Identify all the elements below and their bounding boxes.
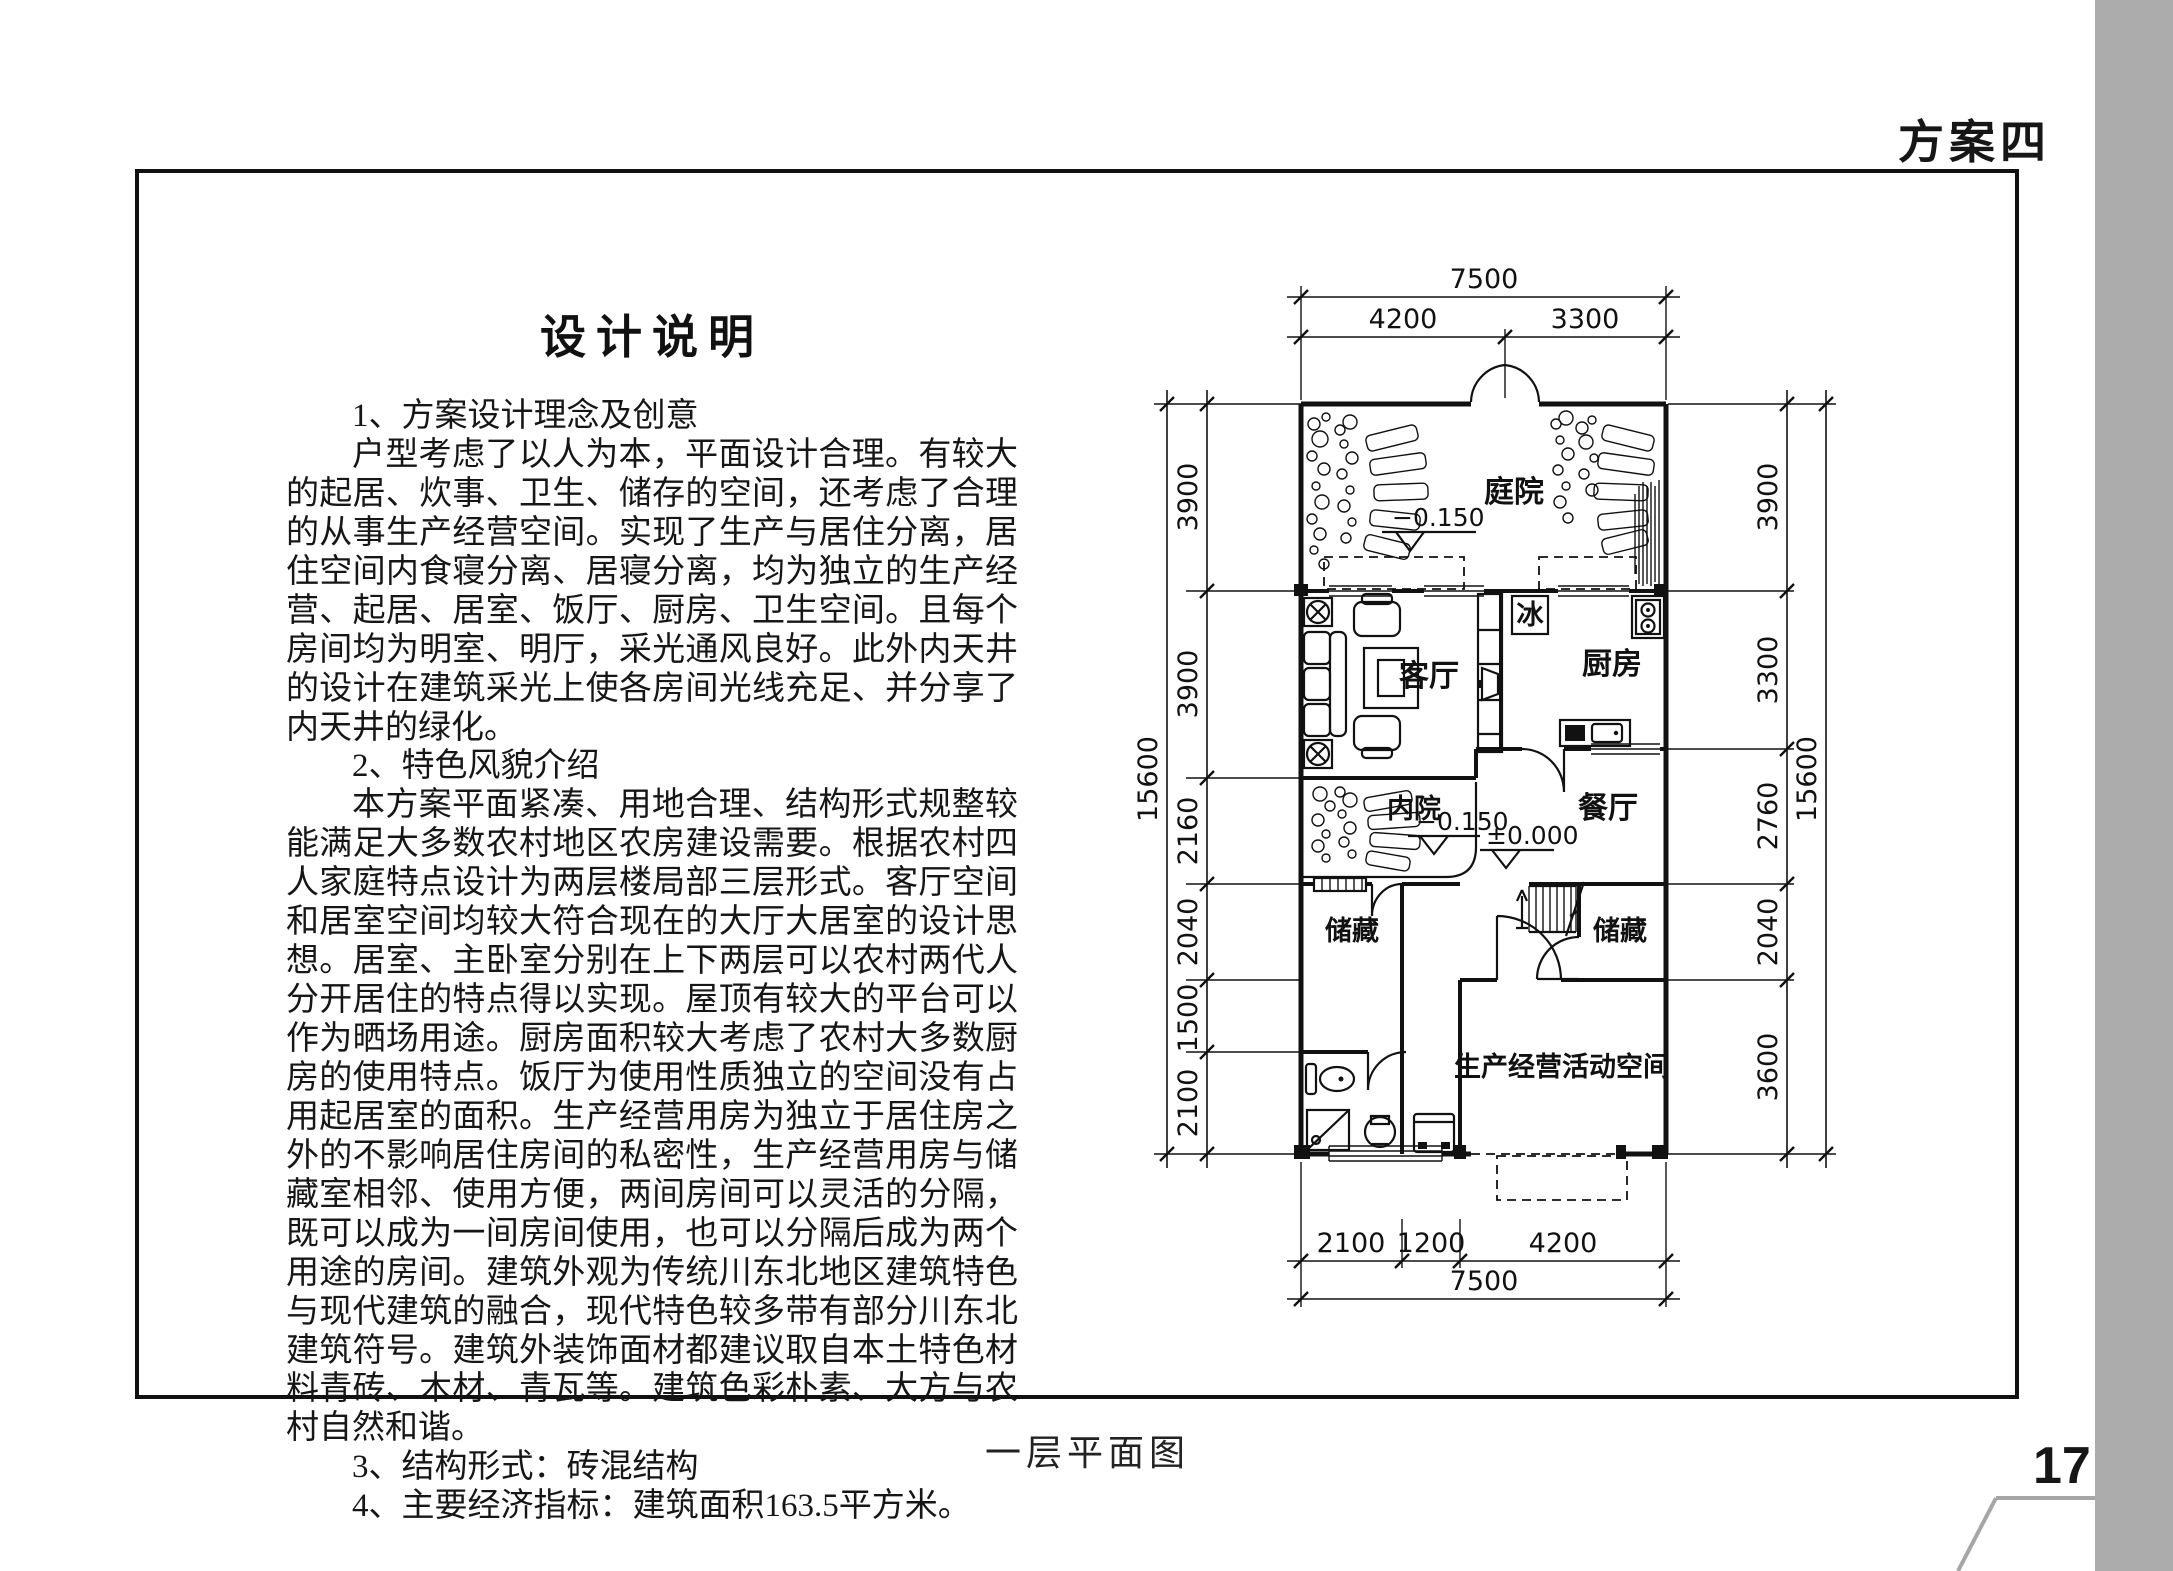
room-label-living: 客厅 — [1399, 659, 1459, 693]
scheme-tag: 方案四 — [1898, 106, 2051, 172]
dim-bottom-seg-3: 4200 — [1529, 1228, 1598, 1259]
section-heading-3: 3、结构形式：砖混结构 — [286, 1448, 1018, 1487]
section-heading-1: 1、方案设计理念及创意 — [286, 397, 1018, 436]
floor-plan: 7500 4200 3300 15600 3900 3900 2160 2040… — [1124, 234, 1924, 1354]
room-label-production: 生产经营活动空间 — [1454, 1051, 1670, 1082]
room-label-inner-courtyard: 内院 — [1387, 793, 1441, 824]
porch-dashed — [1497, 1156, 1627, 1200]
dim-right-total: 15600 — [1792, 736, 1823, 822]
room-label-storage-left: 储藏 — [1325, 916, 1379, 946]
article-title: 设计说明 — [286, 301, 1018, 367]
dim-left-seg-4: 2040 — [1173, 898, 1204, 967]
dim-right-seg-2: 3300 — [1753, 636, 1784, 705]
dim-left: 15600 3900 3900 2160 2040 1500 2100 — [1133, 390, 1301, 1168]
dim-bottom: 2100 1200 4200 7500 — [1287, 1162, 1680, 1307]
dim-right-seg-3: 2760 — [1753, 782, 1784, 851]
section-heading-4: 4、主要经济指标：建筑面积163.5平方米。 — [286, 1487, 1018, 1526]
stove — [1632, 596, 1664, 638]
book-page: 方案四 设计说明 1、方案设计理念及创意 户型考虑了以人为本，平面设计合理。有较… — [0, 0, 2173, 1571]
footer-decoration — [1940, 1490, 2100, 1571]
stairs — [1516, 882, 1584, 936]
figure-caption: 一层平面图 — [985, 1424, 1190, 1476]
dim-bottom-seg-1: 2100 — [1317, 1228, 1386, 1259]
inner-court-window — [1314, 878, 1366, 891]
level-marker-ground: ±0.000 — [1480, 821, 1579, 868]
room-label-kitchen: 厨房 — [1582, 648, 1642, 681]
room-label-dining: 餐厅 — [1578, 792, 1638, 825]
room-label-fridge: 冰 — [1517, 600, 1545, 630]
dim-top-seg-2: 3300 — [1551, 304, 1620, 335]
dim-left-seg-5: 1500 — [1173, 984, 1204, 1053]
dim-bottom-total: 7500 — [1450, 1266, 1519, 1297]
section-heading-2: 2、特色风貌介绍 — [286, 747, 1018, 786]
dim-right-seg-4: 2040 — [1753, 898, 1784, 967]
page-number: 17 — [2033, 1436, 2091, 1496]
dim-top-total: 7500 — [1450, 264, 1519, 295]
kitchen-counter — [1560, 720, 1630, 746]
page-edge-band — [2095, 0, 2173, 1571]
level-marker-courtyard: −0.150 — [1382, 503, 1485, 551]
dim-top-seg-1: 4200 — [1369, 304, 1438, 335]
trellis — [1635, 480, 1659, 586]
room-label-storage-right: 储藏 — [1593, 916, 1647, 946]
room-label-courtyard: 庭院 — [1484, 475, 1544, 509]
dim-right-seg-5: 3600 — [1753, 1033, 1784, 1102]
dim-left-seg-3: 2160 — [1173, 797, 1204, 866]
level-ground-text: ±0.000 — [1486, 821, 1579, 850]
tv-cabinet — [1478, 594, 1502, 752]
level-courtyard-text: −0.150 — [1392, 503, 1485, 532]
bathroom-fixtures — [1306, 1064, 1454, 1152]
design-notes-article: 设计说明 1、方案设计理念及创意 户型考虑了以人为本，平面设计合理。有较大的起居… — [286, 301, 1018, 1526]
paragraph-1: 户型考虑了以人为本，平面设计合理。有较大的起居、炊事、卫生、储存的空间，还考虑了… — [286, 436, 1018, 748]
canopy-dashed — [1324, 557, 1636, 589]
dim-left-seg-2: 3900 — [1173, 650, 1204, 719]
dim-left-seg-1: 3900 — [1173, 463, 1204, 532]
dim-top: 7500 4200 3300 — [1287, 264, 1680, 400]
courtyard-plants — [1307, 411, 1655, 569]
dim-left-total: 15600 — [1133, 736, 1164, 822]
dim-right: 3900 3300 2760 2040 3600 15600 — [1668, 390, 1836, 1168]
paragraph-2: 本方案平面紧凑、用地合理、结构形式规整较能满足大多数农村地区农房建设需要。根据农… — [286, 786, 1018, 1448]
content-box: 设计说明 1、方案设计理念及创意 户型考虑了以人为本，平面设计合理。有较大的起居… — [135, 169, 2019, 1399]
dim-bottom-seg-2: 1200 — [1397, 1228, 1466, 1259]
dim-left-seg-6: 2100 — [1173, 1069, 1204, 1138]
dim-right-seg-1: 3900 — [1753, 463, 1784, 532]
